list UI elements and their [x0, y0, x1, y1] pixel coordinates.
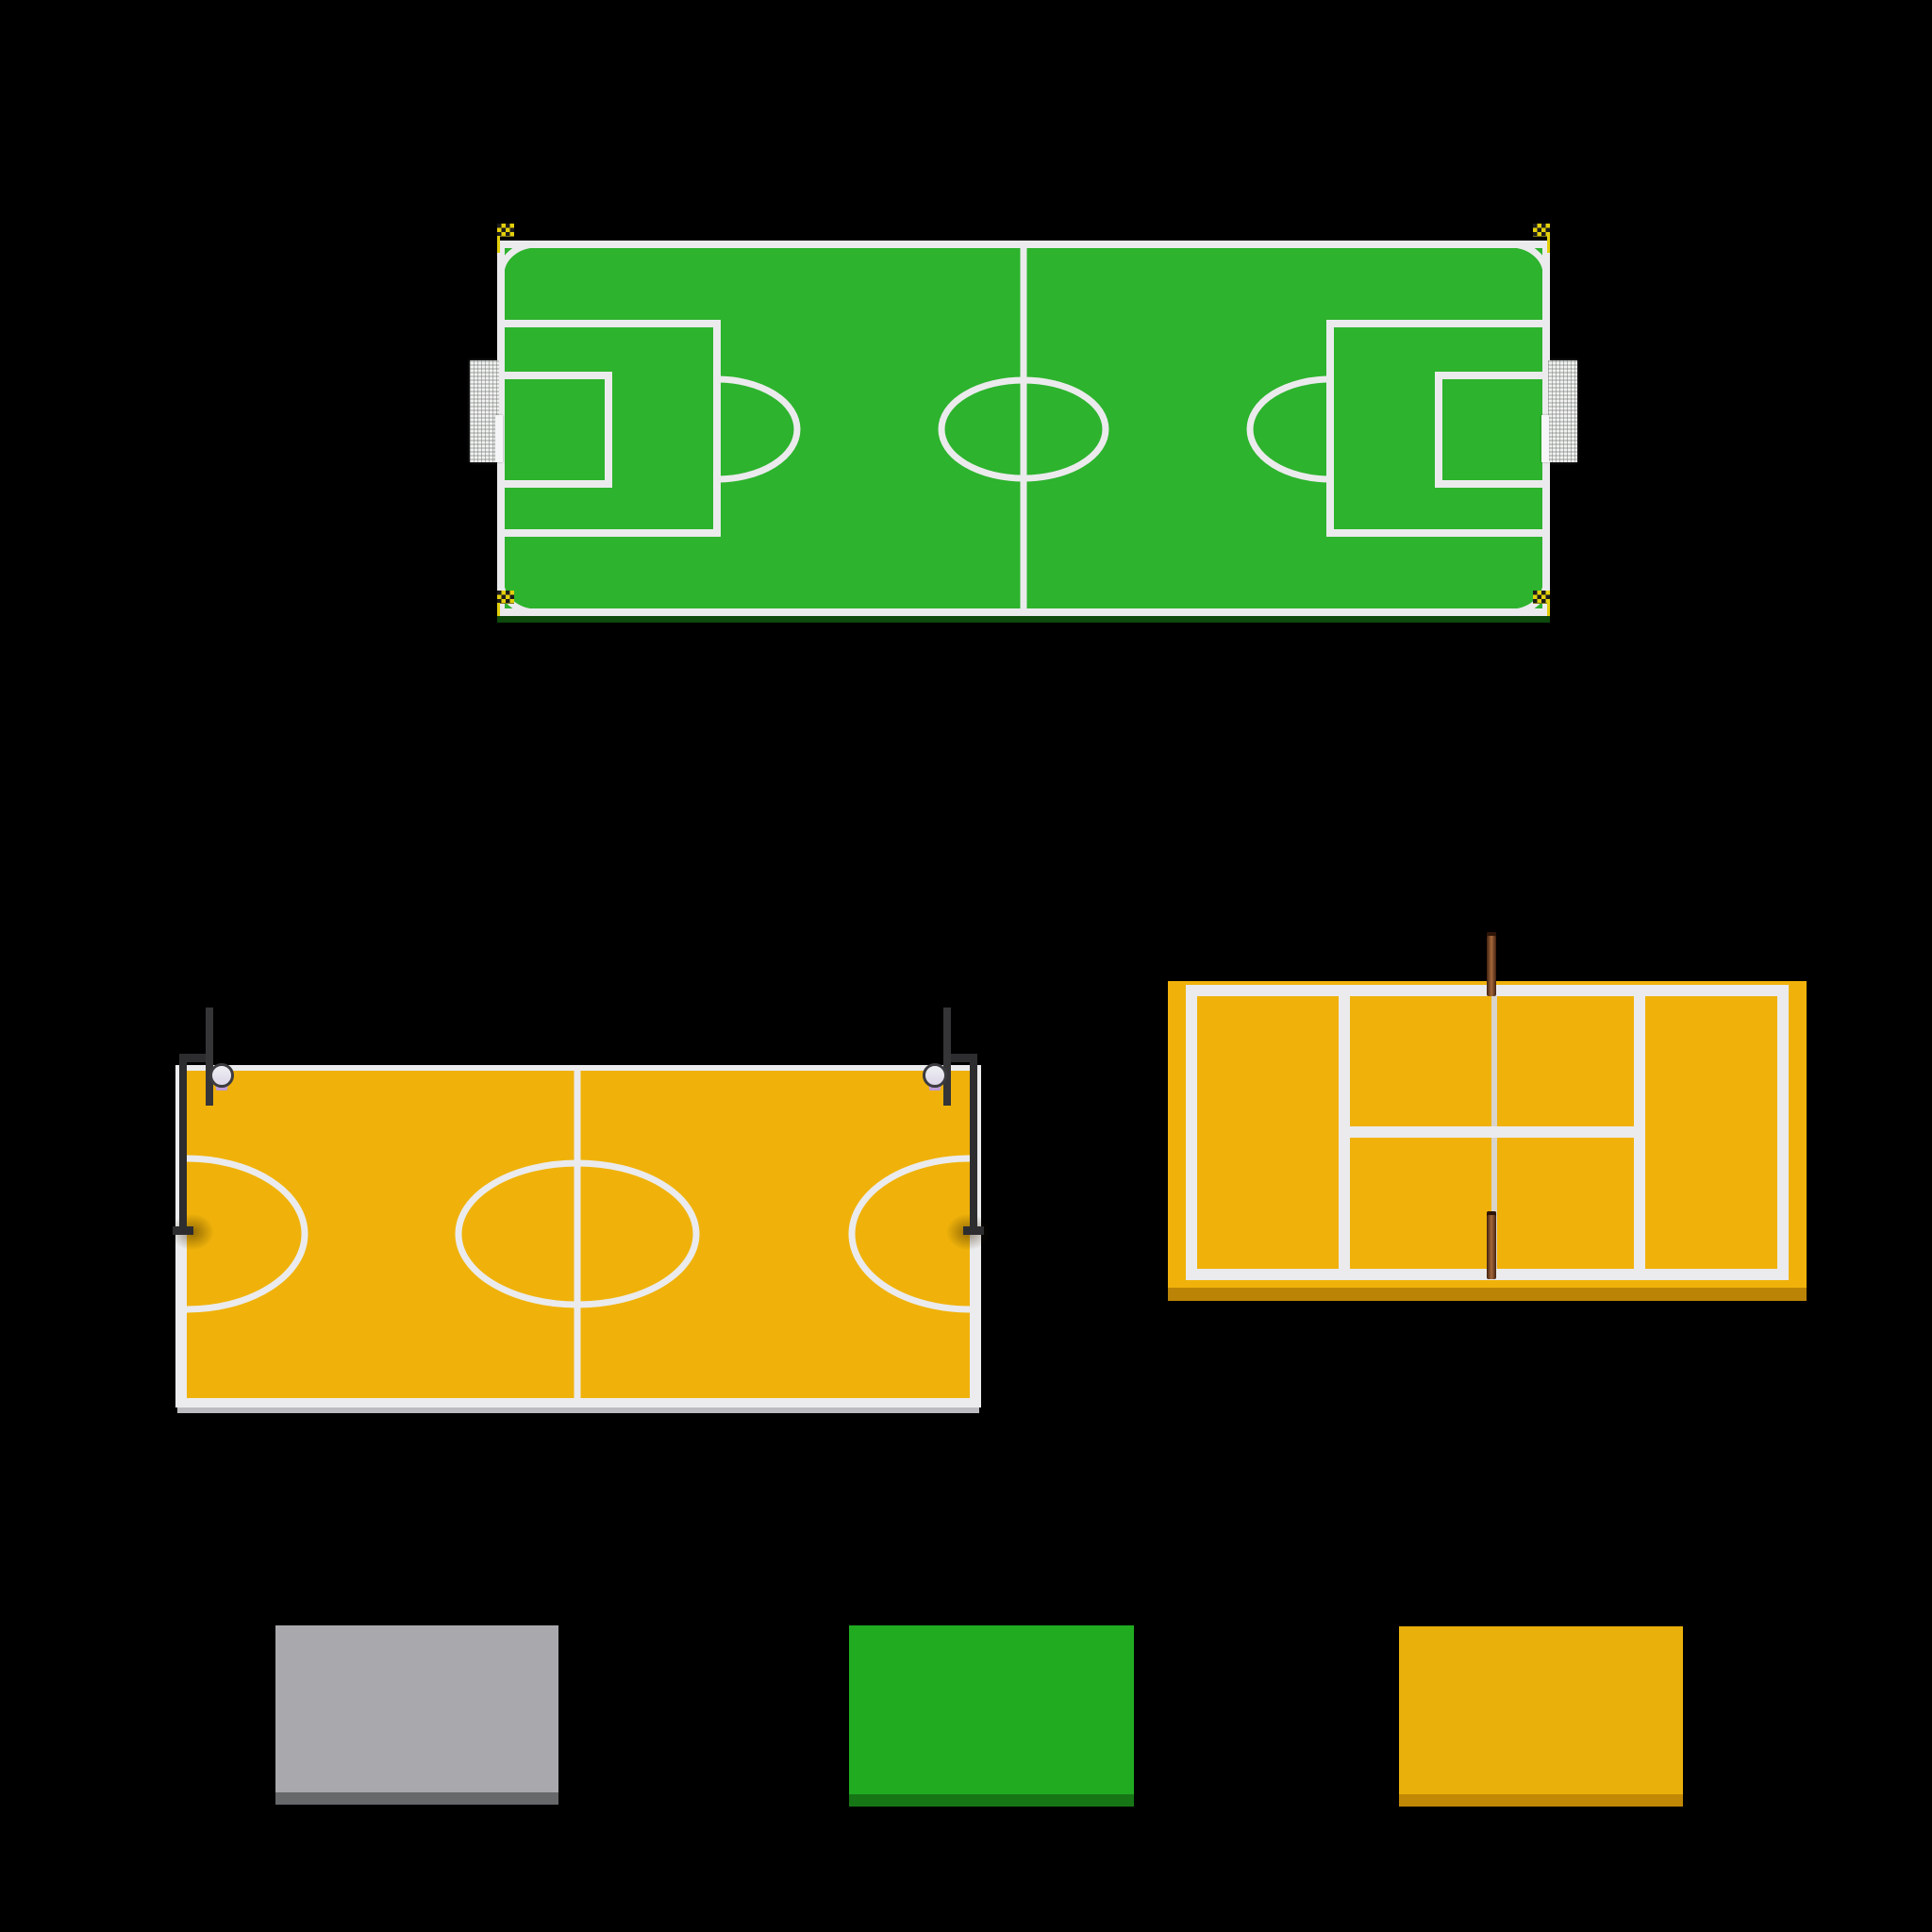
basketball-hoop-pole [179, 1054, 187, 1233]
basketball-rim [209, 1063, 234, 1088]
soccer-corner-arc-top-left [501, 244, 537, 275]
ground-slab-gray-top [275, 1625, 558, 1792]
soccer-goal-area-right [1439, 375, 1546, 484]
basketball-backboard [206, 1008, 213, 1106]
ground-slab-green-side [849, 1794, 1134, 1807]
soccer-corner-arc-top-right [1510, 244, 1546, 275]
corner-flag-pole [1547, 603, 1550, 616]
corner-flag-pole [497, 603, 500, 616]
tennis-court [1168, 981, 1807, 1288]
soccer-goal-right [1548, 360, 1577, 462]
basketball-slab-side-face [177, 1407, 979, 1413]
render-canvas: { "scene": { "description": "Top-down 3D… [0, 0, 1932, 1932]
tennis-net-post-top [1487, 932, 1496, 996]
corner-flag-icon [1533, 224, 1550, 237]
basketball-hoop-pole-base [963, 1226, 984, 1235]
ground-slab-gray-side [275, 1792, 558, 1805]
basketball-hoop-pole [970, 1054, 977, 1233]
tennis-net-post-bottom [1487, 1211, 1496, 1279]
tennis-court-side-face [1168, 1288, 1807, 1301]
basketball-backboard [943, 1008, 951, 1106]
ground-slab-yellow-top [1399, 1626, 1683, 1794]
soccer-field-side-face [497, 616, 1550, 623]
basketball-court-markings [187, 1071, 970, 1398]
basketball-rim [923, 1063, 947, 1088]
corner-flag-icon [497, 224, 514, 237]
soccer-field-markings [497, 241, 1550, 616]
basketball-court [175, 1065, 981, 1407]
basketball-hoop-pole-base [173, 1226, 193, 1235]
corner-flag-icon [497, 591, 514, 604]
soccer-goal-area-left [501, 375, 608, 484]
soccer-goal-left-bar [495, 415, 503, 462]
ground-slab-green-top [849, 1625, 1134, 1794]
soccer-penalty-arc-left [717, 379, 797, 479]
soccer-penalty-arc-right [1250, 379, 1330, 479]
basketball-court-surface [187, 1071, 970, 1398]
soccer-field [497, 241, 1550, 616]
corner-flag-pole [497, 236, 500, 253]
ground-slab-gray [275, 1625, 558, 1792]
ground-slab-yellow-side [1399, 1794, 1683, 1807]
corner-flag-pole [1547, 236, 1550, 253]
ground-slab-green [849, 1625, 1134, 1794]
soccer-goal-right-bar [1541, 415, 1549, 462]
ground-slab-yellow [1399, 1626, 1683, 1794]
corner-flag-icon [1533, 591, 1550, 604]
